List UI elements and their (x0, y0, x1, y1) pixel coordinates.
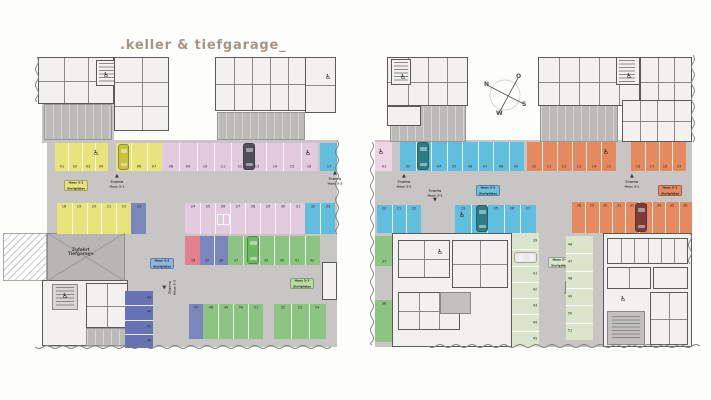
room-divider (629, 268, 630, 288)
stall-number: 08 (496, 165, 506, 169)
stall-number: 52 (278, 306, 288, 310)
entry-arrow-icon: ▲ (115, 174, 119, 179)
entry-arrow-haus52-r: ▲ZugangHaus 5-2 (389, 174, 419, 189)
stall-number: 15 (287, 165, 297, 169)
stall-divider (147, 143, 148, 171)
stall-number: 40 (277, 259, 287, 263)
stall-number: 45 (530, 337, 540, 341)
stall-divider (493, 142, 494, 171)
stall-number: 42 (530, 288, 540, 292)
car-windshield (121, 149, 127, 153)
parking-green-mid: 373839404142 (228, 236, 320, 265)
room-divider (115, 82, 168, 83)
compass-letter: N (484, 82, 489, 88)
stall-number: 22 (409, 207, 419, 211)
stall-divider (572, 142, 573, 171)
stall-divider (218, 304, 219, 339)
stall-number: 36 (216, 259, 226, 263)
stall-divider (309, 304, 310, 339)
stall-number: 09 (183, 165, 193, 169)
stall-divider (301, 143, 302, 171)
stall-divider (320, 203, 321, 234)
stall-number: 17 (647, 165, 657, 169)
stall-number: 32 (308, 205, 318, 209)
cellar-rooms-block (322, 262, 337, 300)
entry-arrow-icon: ▲ (630, 174, 634, 179)
stall-number: 44 (144, 311, 154, 315)
plan-line (499, 78, 518, 113)
room-divider (661, 239, 662, 263)
stall-number: 07 (480, 165, 490, 169)
stall-number: 48 (565, 278, 575, 282)
room-divider (453, 264, 507, 265)
stall-divider (125, 334, 153, 335)
room-divider (641, 82, 691, 83)
stall-divider (200, 203, 201, 234)
stall-divider (652, 202, 653, 233)
room-divider (648, 239, 649, 263)
stall-number: 21 (104, 205, 114, 209)
stall-divider (87, 203, 88, 234)
car-rear-window (530, 255, 533, 261)
stair-area (440, 292, 471, 314)
stall-number: 42 (308, 259, 318, 263)
stall-number: 31 (293, 205, 303, 209)
stall-number: 49 (221, 306, 231, 310)
zone-label-haus53-r: Haus 5-3Stellplätze (476, 185, 500, 196)
room-divider (216, 84, 306, 85)
stall-number: 39 (530, 239, 540, 243)
stall-divider (214, 143, 215, 171)
cellar-rooms-block (653, 267, 688, 289)
outdoor-ramp-hatch (3, 233, 47, 281)
stall-number: 34 (654, 204, 664, 208)
stall-number: 31 (614, 204, 624, 208)
zone-label-text: Stellplätze (661, 192, 679, 195)
wheelchair-icon: ♿ (62, 293, 68, 300)
stall-number: 06 (134, 165, 144, 169)
stall-divider (243, 236, 244, 265)
stall-number: 27 (523, 207, 533, 211)
stall-number: 46 (144, 339, 154, 343)
wheelchair-stall-icon: ♿ (305, 150, 311, 157)
stall-divider (68, 143, 69, 171)
parking-yellow-a: 01020304 (55, 143, 108, 171)
parking-periwinkle: 3536 (200, 236, 228, 265)
stall-divider (566, 271, 593, 272)
car-windshield (250, 241, 257, 245)
car-white (514, 252, 537, 263)
room-divider (623, 121, 691, 122)
wheelchair-icon: ♿ (437, 249, 443, 256)
stall-number: 53 (295, 306, 305, 310)
stall-number: 35 (667, 204, 677, 208)
stall-divider (214, 236, 215, 265)
stall-divider (215, 203, 216, 234)
storage-grid-bottomleft (86, 328, 128, 346)
stall-number: 06 (465, 165, 475, 169)
wheelchair-icon: ♿ (626, 73, 632, 80)
parking-pink-top: 080910111213141516 (162, 143, 318, 171)
stall-number: 19 (674, 165, 684, 169)
stall-divider (542, 142, 543, 171)
zone-label-haus53: Haus 5-3Stellplätze (290, 278, 314, 289)
stall-number: 51 (565, 330, 575, 334)
zone-label-text: Haus 5-2 (155, 259, 170, 262)
zone-label-haus51: Haus 5-1Stellplätze (64, 180, 88, 191)
stall-number: 02 (70, 165, 80, 169)
room-divider (674, 239, 675, 263)
entry-label: Zugang (429, 189, 442, 192)
stall-number: 50 (236, 306, 246, 310)
room-divider (651, 319, 687, 320)
stall-number: 41 (292, 259, 302, 263)
stall-number: 20 (89, 205, 99, 209)
stall-divider (290, 203, 291, 234)
stall-number: 20 (380, 207, 390, 211)
stall-divider (665, 202, 666, 233)
compass-letter: S (522, 102, 526, 108)
stall-number: 16 (633, 165, 643, 169)
parking-green-bottom1: 48495051 (203, 304, 263, 339)
cellar-rooms-block (305, 57, 336, 113)
parking-pink-2: 2425262728293031 (185, 203, 305, 234)
stall-number: 09 (511, 165, 521, 169)
parking-darkblue-column: 43444546 (125, 291, 153, 348)
stall-number: 29 (587, 204, 597, 208)
stall-number: 51 (251, 306, 261, 310)
stall-divider (512, 266, 539, 267)
parking-yellow-c: 1819202122 (57, 203, 131, 234)
stall-divider (291, 304, 292, 339)
parking-cyan-triple: 202122 (377, 205, 421, 233)
wheelchair-stall-icon: ♿ (459, 212, 465, 219)
stall-divider (478, 142, 479, 171)
room-divider (87, 306, 127, 307)
stall-divider (512, 298, 539, 299)
stall-divider (266, 143, 267, 171)
stall-number: 01 (57, 165, 67, 169)
entry-arrow-haus53-left: ◀ZugangHaus 5-3 (162, 273, 177, 303)
stall-divider (566, 323, 593, 324)
stall-number: 26 (507, 207, 517, 211)
entry-label: Haus 5-2 (327, 182, 342, 185)
stall-divider (275, 203, 276, 234)
stall-number: 30 (601, 204, 611, 208)
stall-divider (392, 205, 393, 233)
stall-divider (101, 203, 102, 234)
entry-arrow-icon: ▲ (402, 174, 406, 179)
zone-label-text: Stellplätze (293, 285, 311, 288)
stall-number: 16 (305, 165, 315, 169)
entry-arrow-icon: ◀ (162, 286, 167, 290)
stairs-icon (612, 316, 640, 340)
car-windshield (246, 148, 253, 152)
wheelchair-icon: ♿ (103, 72, 109, 79)
car-yellow (118, 144, 129, 170)
compass-letter: O (516, 74, 521, 80)
stall-number: 37 (379, 260, 389, 264)
parking-orange-b: 16171819 (631, 142, 686, 171)
storage-grid-left2 (217, 112, 305, 140)
zone-label-text: Haus 5-1 (663, 186, 678, 189)
stall-number: 18 (661, 165, 671, 169)
stall-number: 02 (403, 165, 413, 169)
zone-label-text: Haus 5-1 (69, 181, 84, 184)
cellar-rooms-block (215, 57, 307, 111)
stall-number: 28 (574, 204, 584, 208)
wheelchair-stall-icon: ♿ (378, 149, 384, 156)
stall-number: 41 (530, 272, 540, 276)
entry-label: Zugang (398, 180, 411, 183)
stall-divider (179, 143, 180, 171)
stall-number: 14 (589, 165, 599, 169)
stall-divider (612, 202, 613, 233)
zone-label-haus52: Haus 5-2Stellplätze (150, 258, 174, 269)
parking-orange-a: 101112131415 (527, 142, 616, 171)
stall-divider (230, 203, 231, 234)
compass-circle (490, 80, 520, 110)
stall-number: 39 (262, 259, 272, 263)
stall-number: 04 (434, 165, 444, 169)
cellar-rooms-block (398, 240, 450, 278)
stall-number: 28 (248, 205, 258, 209)
stall-number: 10 (201, 165, 211, 169)
stall-number: 07 (150, 165, 160, 169)
cellar-rooms-block (86, 283, 128, 328)
car-windshield (479, 210, 486, 214)
stall-number: 27 (233, 205, 243, 209)
stall-divider (462, 142, 463, 171)
stall-number: 43 (530, 304, 540, 308)
car-rear-window (250, 257, 257, 260)
parking-cyan-2: 2324252627 (455, 205, 536, 233)
stall-number: 47 (565, 260, 575, 264)
room-divider (142, 58, 143, 130)
zone-label-haus51-r: Haus 5-1Stellplätze (658, 185, 682, 196)
stall-number: 21 (394, 207, 404, 211)
car-rear-window (246, 163, 253, 166)
stall-divider (231, 143, 232, 171)
entry-label: Haus 5-1 (109, 185, 124, 188)
parking-green-bottom2: 525354 (274, 304, 326, 339)
wheelchair-icon: ♿ (400, 74, 406, 81)
stall-divider (566, 305, 593, 306)
stall-divider (283, 143, 284, 171)
room-divider (634, 239, 635, 263)
parking-periwinkle-bottom: 47 (189, 304, 203, 339)
parking-orange-c: 282930313233343536 (572, 202, 692, 233)
car-darkred (635, 203, 647, 232)
stall-number: 23 (134, 205, 144, 209)
entry-label: Zugang (169, 281, 172, 294)
parking-cyan-topright: 17 (320, 143, 337, 171)
stall-divider (504, 205, 505, 233)
parking-palepink-single: 01 (375, 142, 392, 171)
stall-divider (447, 142, 448, 171)
car-green (247, 236, 259, 264)
storage-grid-right2 (540, 100, 618, 142)
stall-number: 36 (681, 204, 691, 208)
stall-number: 10 (530, 165, 540, 169)
stall-number: 33 (323, 205, 333, 209)
car-dark-gray (243, 143, 255, 170)
stall-number: 48 (206, 306, 216, 310)
zone-label-text: Stellplätze (153, 265, 171, 268)
entry-arrow-icon: ▼ (433, 198, 437, 203)
entry-label: Haus 5-2 (396, 185, 411, 188)
stall-number: 11 (544, 165, 554, 169)
entry-arrow-haus53-down: ZugangHaus 5-3▼ (420, 188, 450, 203)
parking-red-single: 34 (185, 236, 200, 265)
stall-divider (125, 320, 153, 321)
stall-divider (585, 202, 586, 233)
storage-grid-left (44, 104, 112, 140)
wheelchair-stall-icon: ♿ (93, 150, 99, 157)
motorcycle-bays (217, 214, 229, 224)
stall-divider (512, 282, 539, 283)
stall-number: 29 (263, 205, 273, 209)
stall-divider (289, 236, 290, 265)
stall-divider (512, 314, 539, 315)
stall-number: 25 (491, 207, 501, 211)
parking-green-left2: 38 (375, 300, 392, 342)
parking-sage-col1: 39404142434445 (512, 233, 539, 347)
stall-number: 38 (379, 302, 389, 306)
stall-divider (245, 203, 246, 234)
stall-divider (274, 236, 275, 265)
stall-divider (625, 202, 626, 233)
stall-divider (471, 205, 472, 233)
stall-divider (586, 142, 587, 171)
stall-number: 18 (60, 205, 70, 209)
stall-number: 35 (202, 259, 212, 263)
cellar-rooms-block (622, 100, 692, 142)
stall-number: 37 (231, 259, 241, 263)
stall-number: 49 (565, 295, 575, 299)
entry-label: Zugang (329, 177, 342, 180)
stall-divider (233, 304, 234, 339)
stall-divider (512, 249, 539, 250)
entry-label: Zugang (111, 180, 124, 183)
stall-number: 19 (74, 205, 84, 209)
car-windshield (420, 147, 427, 151)
compass-letter: W (496, 111, 503, 117)
stall-divider (509, 142, 510, 171)
stall-divider (520, 205, 521, 233)
stall-divider (260, 203, 261, 234)
stall-divider (116, 203, 117, 234)
stall-number: 47 (191, 306, 201, 310)
stall-number: 30 (278, 205, 288, 209)
stall-number: 05 (449, 165, 459, 169)
room-divider (115, 106, 168, 107)
entry-arrow-haus52: ▲ZugangHaus 5-2 (320, 171, 350, 186)
stall-divider (512, 331, 539, 332)
stall-divider (566, 253, 593, 254)
cellar-rooms-block (650, 292, 688, 345)
entry-arrow-icon: ▲ (333, 171, 337, 176)
stall-number: 45 (144, 325, 154, 329)
car-teal2 (476, 205, 488, 232)
stall-number: 50 (565, 312, 575, 316)
room-divider (306, 85, 335, 86)
cellar-rooms-block (114, 57, 169, 131)
entry-arrow-haus51: ▲ZugangHaus 5-1 (102, 174, 132, 189)
cellar-rooms-block (452, 240, 508, 288)
cut-line (371, 142, 374, 345)
stall-number: 12 (559, 165, 569, 169)
stall-number: 44 (530, 321, 540, 325)
car-windshield (638, 208, 645, 212)
stall-divider (557, 142, 558, 171)
stall-divider (248, 304, 249, 339)
plan-line (487, 85, 524, 104)
stall-divider (305, 236, 306, 265)
car-rear-window (638, 225, 645, 228)
stall-divider (125, 305, 153, 306)
stall-number: 24 (188, 205, 198, 209)
stall-number: 54 (313, 306, 323, 310)
wheelchair-stall-icon: ♿ (603, 149, 609, 156)
floorplan-canvas: .keller & tiefgarage_ ♿♿01020304♿0506070… (0, 0, 711, 400)
stall-number: 34 (188, 259, 198, 263)
room-divider (399, 259, 449, 260)
car-rear-window (420, 163, 427, 166)
room-divider (621, 239, 622, 263)
zone-label-text: Stellplätze (67, 187, 85, 190)
parking-green-left1: 37 (375, 236, 392, 266)
garage-ramp (47, 233, 125, 281)
stall-number: 03 (83, 165, 93, 169)
stall-number: 17 (324, 165, 334, 169)
entry-label: Haus 5-3 (174, 280, 177, 295)
stall-divider (131, 143, 132, 171)
stall-number: 26 (218, 205, 228, 209)
ramp-caption: Zufahrt Tiefgarage (68, 248, 94, 256)
wheelchair-icon: ♿ (620, 296, 626, 303)
stall-divider (406, 205, 407, 233)
entry-arrow-haus51-r: ▲ZugangHaus 5-1 (617, 174, 647, 189)
stall-divider (431, 142, 432, 171)
entry-label: Zugang (626, 180, 639, 183)
car-windshield (519, 255, 523, 261)
stall-number: 25 (203, 205, 213, 209)
stall-divider (672, 142, 673, 171)
zone-label-text: Stellplätze (479, 192, 497, 195)
cellar-rooms-block (607, 238, 688, 264)
stall-divider (601, 142, 602, 171)
stall-number: 14 (270, 165, 280, 169)
stall-number: 13 (574, 165, 584, 169)
car-rear-window (479, 225, 486, 228)
stall-number: 01 (379, 165, 389, 169)
stall-number: 46 (565, 243, 575, 247)
wheelchair-icon: ♿ (325, 74, 331, 81)
stall-number: 08 (166, 165, 176, 169)
cellar-rooms-block (387, 106, 421, 126)
moto-bay (223, 214, 230, 225)
stall-divider (197, 143, 198, 171)
parking-sage-col2: 464748495051 (566, 236, 593, 340)
entry-label: Haus 5-1 (624, 185, 639, 188)
entry-label: Haus 5-3 (427, 194, 442, 197)
stall-divider (645, 142, 646, 171)
stall-number: 22 (119, 205, 129, 209)
car-teal (417, 142, 429, 170)
stall-number: 04 (97, 165, 107, 169)
stall-number: 11 (218, 165, 228, 169)
